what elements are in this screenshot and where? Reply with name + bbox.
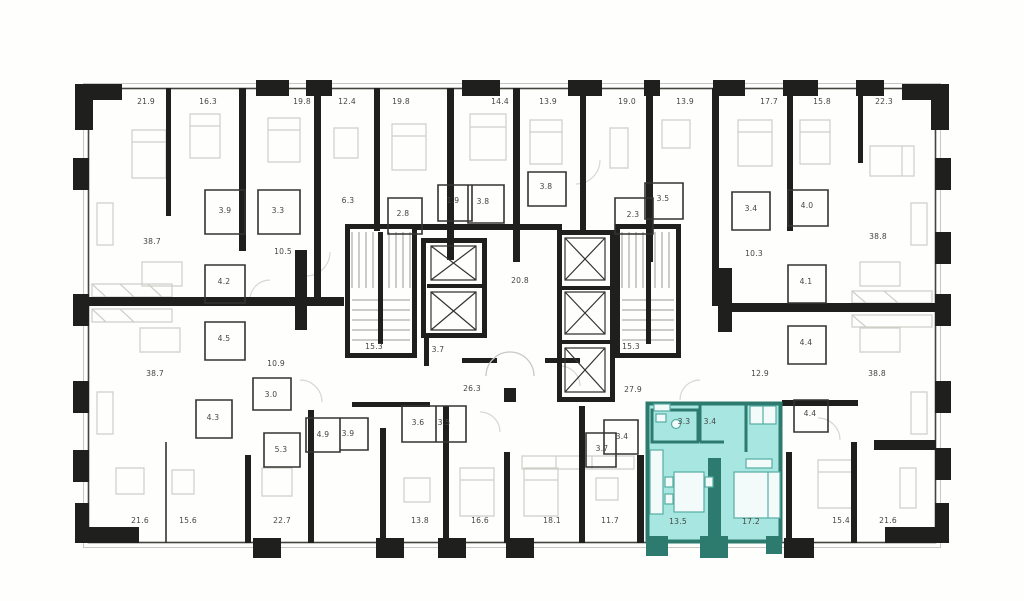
room-area-label: 20.8 — [511, 276, 529, 285]
room-area-label: 3.4 — [704, 417, 717, 426]
room-area-label: 3.5 — [657, 194, 670, 203]
room-area-label: 11.7 — [601, 516, 619, 525]
room-area-label: 3.5 — [438, 418, 451, 427]
kitchen-counter — [650, 450, 663, 514]
perimeter-columns — [73, 80, 951, 558]
main-exterior-wall — [89, 89, 936, 543]
room-area-label: 3.8 — [540, 182, 553, 191]
room-area-label: 4.4 — [804, 409, 817, 418]
room-area-label: 15.8 — [813, 97, 831, 106]
chair — [665, 477, 673, 487]
chair — [665, 494, 673, 504]
room-area-label: 4.3 — [207, 413, 220, 422]
room-area-label: 3.9 — [219, 206, 232, 215]
dining-table — [674, 472, 704, 512]
room-area-label: 15.6 — [179, 516, 197, 525]
room-area-label: 13.9 — [539, 97, 557, 106]
room-area-label: 27.9 — [624, 385, 642, 394]
exterior-walls — [84, 84, 941, 548]
room-area-label: 38.8 — [869, 232, 887, 241]
room-area-label: 1.9 — [447, 196, 460, 205]
room-area-label: 4.1 — [800, 277, 813, 286]
room-area-label: 3.4 — [745, 204, 758, 213]
room-area-label: 19.0 — [618, 97, 636, 106]
room-area-label: 3.3 — [272, 206, 285, 215]
bedroom-shelf — [746, 459, 772, 468]
room-area-label: 10.3 — [745, 249, 763, 258]
room-area-label: 19.8 — [392, 97, 410, 106]
room-area-label: 13.8 — [411, 516, 429, 525]
bed — [734, 472, 780, 518]
entrance-vestibule-arc — [486, 352, 534, 376]
room-area-label: 2.3 — [627, 210, 640, 219]
room-area-label: 21.9 — [137, 97, 155, 106]
storage-niche — [654, 404, 670, 411]
room-area-label: 19.8 — [293, 97, 311, 106]
bathroom-sink — [656, 414, 666, 422]
room-area-label: 17.2 — [742, 517, 760, 526]
room-area-label: 15.3 — [622, 342, 640, 351]
room-area-label: 6.3 — [342, 196, 355, 205]
room-area-label: 21.6 — [879, 516, 897, 525]
room-area-label: 38.8 — [868, 369, 886, 378]
room-area-label: 12.4 — [338, 97, 356, 106]
interior-walls-thick — [88, 88, 936, 543]
room-area-label: 3.7 — [596, 444, 609, 453]
room-area-label: 4.5 — [218, 334, 231, 343]
upper-unit-partitions — [166, 88, 863, 306]
room-area-label: 18.1 — [543, 516, 561, 525]
room-area-label: 21.6 — [131, 516, 149, 525]
room-area-label: 22.3 — [875, 97, 893, 106]
room-area-label: 14.4 — [491, 97, 509, 106]
room-area-label: 3.7 — [432, 345, 445, 354]
room-area-label: 17.7 — [760, 97, 778, 106]
room-area-label: 38.7 — [143, 237, 161, 246]
room-area-label: 15.3 — [365, 342, 383, 351]
room-area-label: 2.8 — [397, 209, 410, 218]
room-area-label: 26.3 — [463, 384, 481, 393]
room-area-label: 4.9 — [317, 430, 330, 439]
room-area-label: 10.5 — [274, 247, 292, 256]
room-area-label: 3.9 — [342, 429, 355, 438]
room-area-label: 13.9 — [676, 97, 694, 106]
room-area-label: 3.8 — [477, 197, 490, 206]
room-area-label: 12.9 — [751, 369, 769, 378]
beds-and-tables — [97, 114, 927, 516]
room-area-label: 3.3 — [678, 417, 691, 426]
room-area-label: 3.4 — [616, 432, 629, 441]
room-area-label: 16.3 — [199, 97, 217, 106]
room-area-label: 38.7 — [146, 369, 164, 378]
room-area-label: 4.4 — [800, 338, 813, 347]
furniture — [92, 114, 932, 516]
room-area-label: 4.0 — [801, 201, 814, 210]
room-area-label: 10.9 — [267, 359, 285, 368]
room-area-label: 5.3 — [275, 445, 288, 454]
room-area-label: 3.6 — [412, 418, 425, 427]
room-area-label: 16.6 — [471, 516, 489, 525]
room-area-label: 13.5 — [669, 517, 687, 526]
room-area-label: 4.2 — [218, 277, 231, 286]
room-area-label: 22.7 — [273, 516, 291, 525]
room-area-label: 3.0 — [265, 390, 278, 399]
chair — [705, 477, 713, 487]
window-ledge-line — [84, 84, 941, 548]
highlighted-unit-mid-wall — [708, 458, 721, 543]
room-area-label: 15.4 — [832, 516, 850, 525]
floor-plan-canvas: 21.916.319.812.419.814.413.919.013.917.7… — [0, 0, 1024, 601]
